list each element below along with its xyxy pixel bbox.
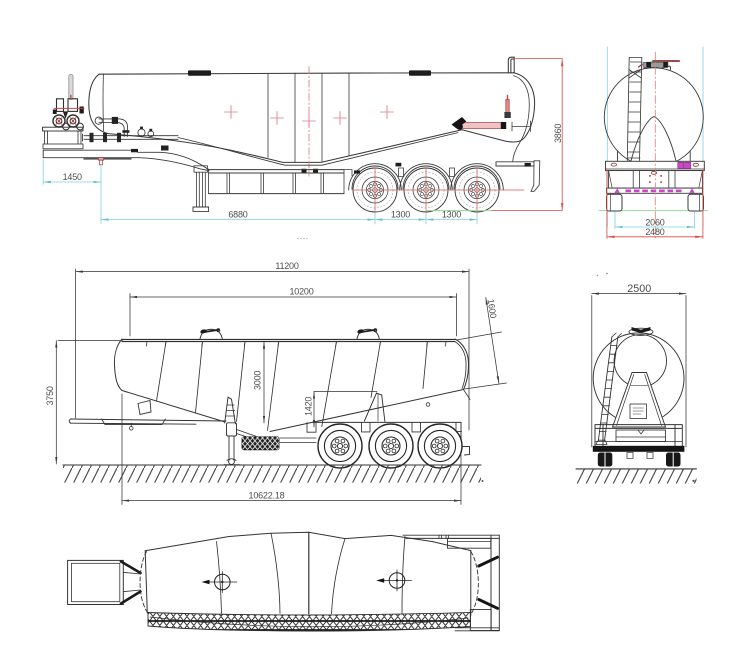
svg-text:10200: 10200	[289, 287, 313, 297]
svg-text:2060: 2060	[645, 217, 664, 227]
svg-text:3860: 3860	[553, 124, 563, 143]
svg-text:1300: 1300	[391, 210, 410, 220]
svg-text:2500: 2500	[627, 283, 651, 295]
svg-text:10622.18: 10622.18	[249, 490, 285, 500]
svg-text:3000: 3000	[253, 371, 263, 390]
svg-text:6880: 6880	[228, 210, 247, 220]
svg-text:11200: 11200	[275, 261, 299, 271]
svg-text:1300: 1300	[442, 210, 461, 220]
svg-text:1450: 1450	[63, 172, 82, 182]
svg-text:1600: 1600	[486, 298, 499, 319]
svg-text:2480: 2480	[645, 227, 664, 237]
svg-text:1420: 1420	[304, 397, 314, 416]
svg-text:3750: 3750	[45, 386, 55, 405]
